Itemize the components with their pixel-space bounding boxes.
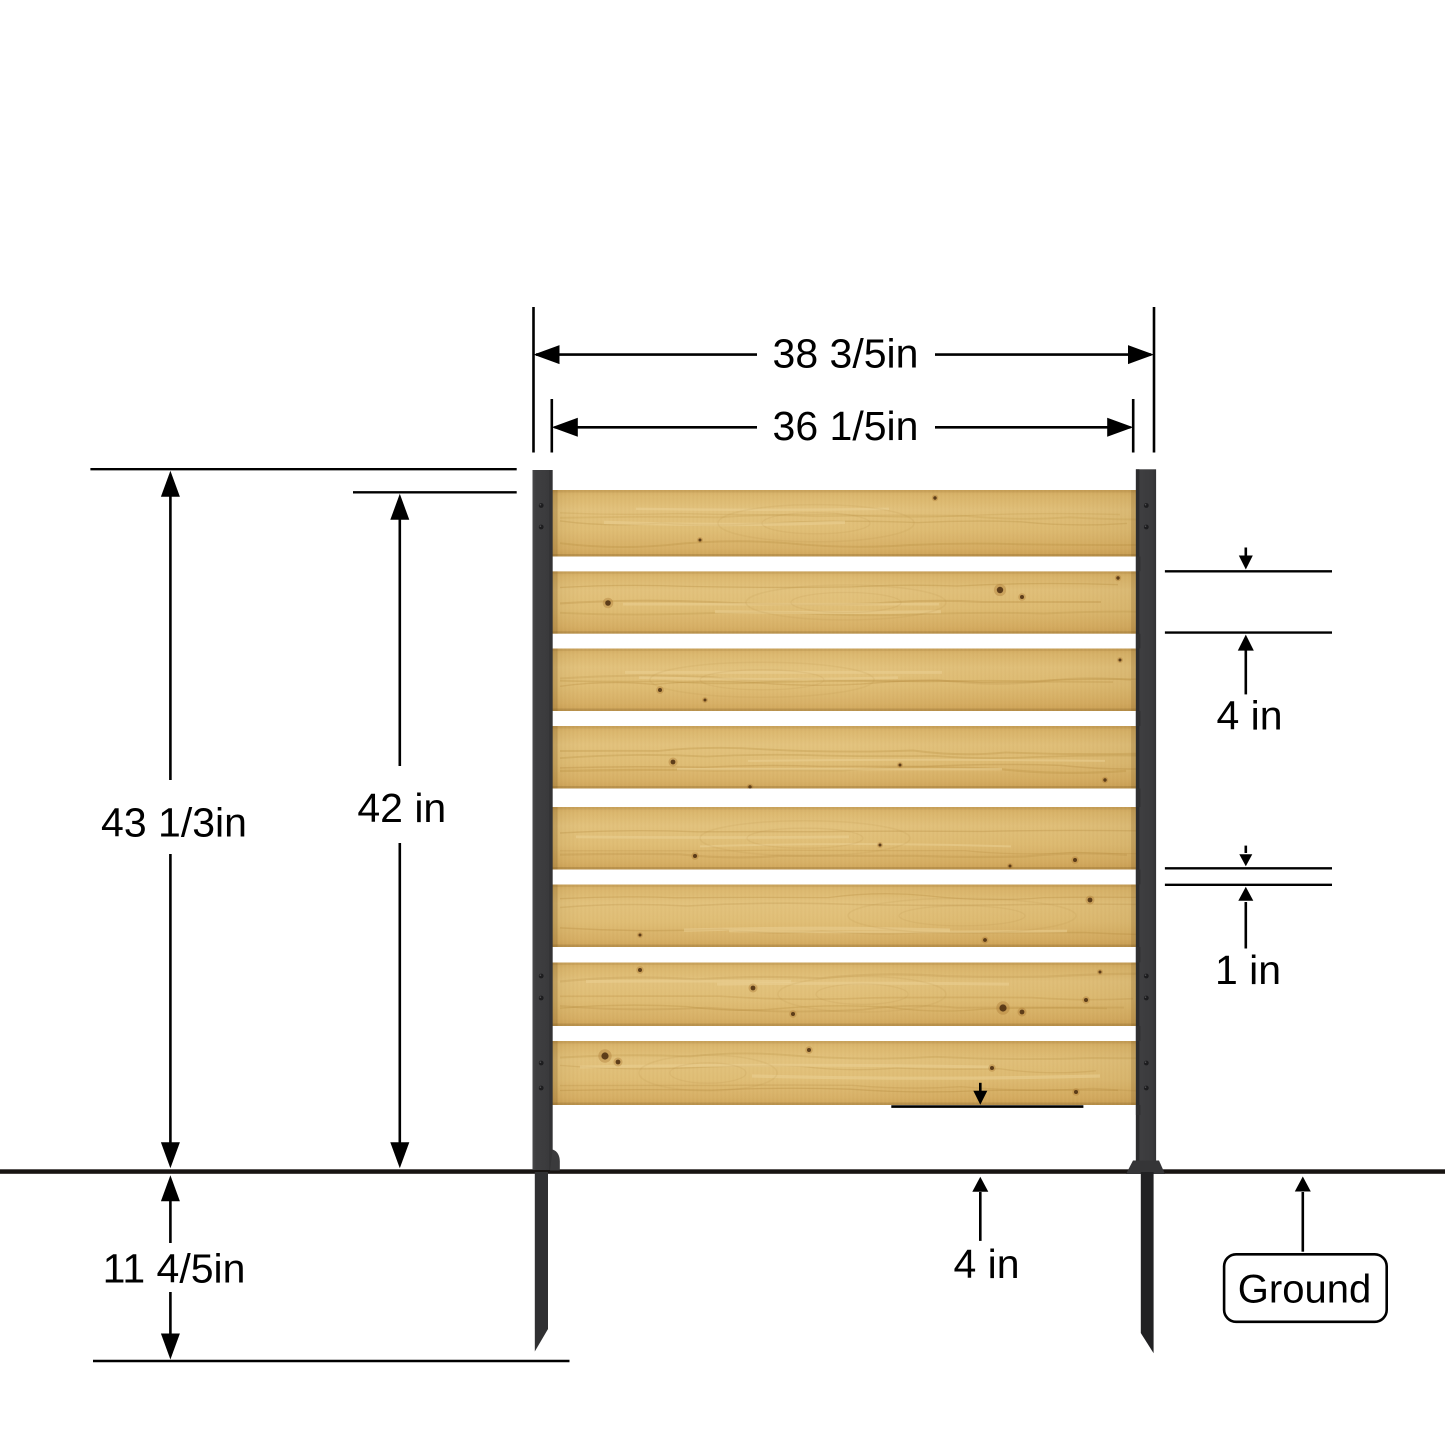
svg-text:42 in: 42 in: [357, 785, 446, 831]
svg-text:4 in: 4 in: [1216, 693, 1282, 739]
svg-text:11 4/5in: 11 4/5in: [103, 1246, 246, 1292]
svg-text:38 3/5in: 38 3/5in: [773, 330, 919, 376]
svg-text:4 in: 4 in: [953, 1241, 1019, 1287]
svg-text:43 1/3in: 43 1/3in: [101, 799, 247, 845]
svg-text:36 1/5in: 36 1/5in: [773, 403, 919, 449]
svg-text:1 in: 1 in: [1215, 947, 1281, 993]
svg-text:Ground: Ground: [1238, 1267, 1371, 1311]
